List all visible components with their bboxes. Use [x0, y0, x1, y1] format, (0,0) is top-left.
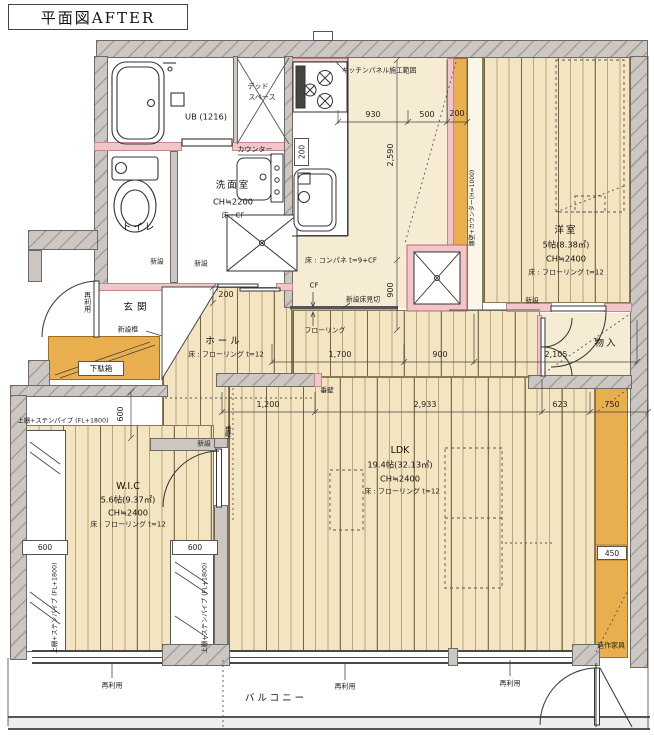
- window-ldk1: [230, 650, 448, 664]
- new-wall-youshitsu-left: [447, 58, 454, 310]
- new-note-1: 新設: [150, 258, 164, 265]
- wall-entrance-top: [28, 230, 98, 250]
- wic-shelf-top: 上棚+ステンパイプ (FL+1800): [18, 419, 109, 426]
- dim-200-hall: 200: [218, 291, 233, 299]
- wall-entrance-left-stub: [28, 250, 42, 282]
- flooring-note: フローリング: [305, 327, 346, 334]
- hanging-wall-note-v: 垂壁: [224, 426, 231, 439]
- wall-bath-dead-divider: [233, 56, 238, 144]
- dim-450-box: 450: [597, 546, 627, 560]
- wic-floor: 床 : フローリング t=12: [90, 521, 166, 528]
- built-in-furniture: [595, 387, 628, 658]
- hall-floor-note: 床 : フローリング t=12: [188, 351, 264, 358]
- wall-top: [96, 40, 648, 58]
- wall-wic-right-a: [214, 438, 228, 448]
- ub-label: UB (1216): [185, 113, 227, 122]
- new-wall-stove-lining: [292, 58, 348, 62]
- wall-balcony-chunk1: [162, 644, 230, 666]
- dim-450-text: 450: [605, 549, 619, 558]
- wall-bath-left: [94, 56, 108, 285]
- shoe-box-text: 下駄箱: [90, 363, 113, 374]
- dim-600-left-text: 600: [38, 543, 52, 552]
- new-wall-washroom-bottom: [94, 283, 218, 291]
- wic-name: W.I.C: [116, 482, 140, 492]
- reuse-balcony-2: 再利用: [335, 683, 356, 690]
- dim-200-kitchen-box: 200: [294, 138, 309, 166]
- youshitsu-size: 5帖(8.38㎡): [543, 241, 590, 250]
- dim-600-wic-top: 600: [117, 406, 125, 421]
- reuse-balcony-1: 再利用: [102, 682, 123, 689]
- wall-mono-bottom: [528, 375, 632, 389]
- wall-right: [630, 56, 648, 668]
- wall-toilet-divider: [170, 151, 178, 283]
- wall-wic-top: [10, 385, 168, 397]
- wic-size: 5.6帖(9.37㎡): [101, 496, 156, 505]
- furniture-label: 造作家具: [597, 642, 625, 649]
- cf-note: CF: [310, 282, 319, 289]
- meter-box: [313, 31, 333, 41]
- wing-wall-hall: [216, 373, 316, 387]
- youshitsu-ch: CH≒2400: [546, 255, 586, 264]
- dim-200-counter: 200: [449, 110, 464, 118]
- hanging-wall-note-h: 垂壁: [320, 387, 334, 394]
- washroom-floor: 床 : CF: [222, 212, 245, 219]
- low-wall-note: 腰壁+カウンター(H=1000): [470, 170, 476, 247]
- floor-plan: 平面図AFTER: [0, 0, 654, 735]
- dim-2933: 2,933: [414, 401, 437, 409]
- dim-1200: 1,200: [257, 401, 280, 409]
- floor-edge-note: 新設床見切: [346, 296, 380, 303]
- dim-500: 500: [419, 111, 434, 119]
- ldk-ch: CH≒2400: [380, 475, 420, 484]
- dim-600-wic-left: 600: [22, 540, 68, 555]
- youshitsu-floor: 床 : フローリング t=12: [528, 269, 604, 276]
- wall-washroom-kitchen: [284, 56, 293, 308]
- new-note-4: 新設: [197, 440, 211, 447]
- window-ldk2: [458, 650, 572, 664]
- dim-900-v: 900: [387, 282, 395, 297]
- ldk-floor: 床 : フローリング t=12: [364, 488, 440, 495]
- counter-label: カウンター: [238, 146, 273, 153]
- dim-623: 623: [552, 401, 567, 409]
- wall-balcony-chunk2: [572, 644, 600, 666]
- mono-ire-name: 物入: [594, 339, 617, 349]
- youshitsu-name: 洋室: [554, 226, 577, 236]
- balcony-outer-edge: [8, 716, 650, 730]
- new-wall-washroom-bottom2: [276, 283, 293, 291]
- corridor-floor: [292, 310, 540, 377]
- kamachi-note: 新設框: [118, 326, 138, 333]
- toilet-name: トイレ: [122, 223, 157, 233]
- dim-1700: 1,700: [329, 351, 352, 359]
- reuse-entrance: 再利用: [83, 292, 90, 313]
- wall-wic-right-b: [214, 505, 228, 657]
- ldk-floor: [228, 377, 595, 652]
- washroom-name: 洗面室: [216, 181, 251, 191]
- wall-wic-left: [10, 395, 27, 660]
- dim-2590: 2,590: [387, 144, 395, 167]
- page-title: 平面図AFTER: [8, 4, 188, 30]
- ldk-size: 19.4帖(32.13㎡): [367, 461, 432, 470]
- wic-ch: CH≒2400: [108, 509, 148, 518]
- dead-space-label-1: デッド: [248, 83, 269, 90]
- dim-2105: 2,105: [545, 351, 568, 359]
- dim-750: 750: [604, 401, 619, 409]
- new-note-3: 新設: [525, 297, 539, 304]
- ldk-name: LDK: [391, 446, 410, 456]
- entrance-name: 玄関: [123, 303, 150, 313]
- washroom-ch: CH≒2200: [213, 198, 253, 207]
- dead-space-label-2: スペース: [248, 94, 275, 101]
- hall-name: ホール: [205, 337, 243, 347]
- wic-shelf-left: 上棚+ステンパイプ (FL+1800): [53, 563, 60, 654]
- new-wall-bath-bottom-left: [94, 142, 182, 151]
- shoe-box-label: 下駄箱: [78, 361, 124, 376]
- new-wall-youshitsu-bottom2: [604, 303, 632, 312]
- balcony-name: バルコニー: [245, 694, 307, 704]
- kitchen-panel-note: キッチンパネル施工範囲: [342, 67, 417, 74]
- dim-900-h: 900: [432, 351, 447, 359]
- wic-shelf-right: 上棚+ステンパイプ (FL+1800): [203, 563, 210, 654]
- wing-wall-cap: [314, 373, 322, 387]
- new-wall-mono-left: [537, 315, 542, 377]
- new-note-2: 新設: [194, 260, 208, 267]
- wall-balcony-stub: [448, 648, 458, 666]
- dim-600-wic-right: 600: [172, 540, 218, 555]
- low-wall-counter: [453, 58, 468, 310]
- kitchen-floor-note: 床 : コンパネ t=9+CF: [305, 257, 377, 264]
- dim-930: 930: [365, 111, 380, 119]
- bath-room-floor: [108, 56, 233, 144]
- dim-600-right-text: 600: [188, 543, 202, 552]
- reuse-balcony-3: 再利用: [500, 680, 521, 687]
- youshitsu-floor: [483, 56, 630, 303]
- dim-200-kitchen: 200: [297, 145, 306, 159]
